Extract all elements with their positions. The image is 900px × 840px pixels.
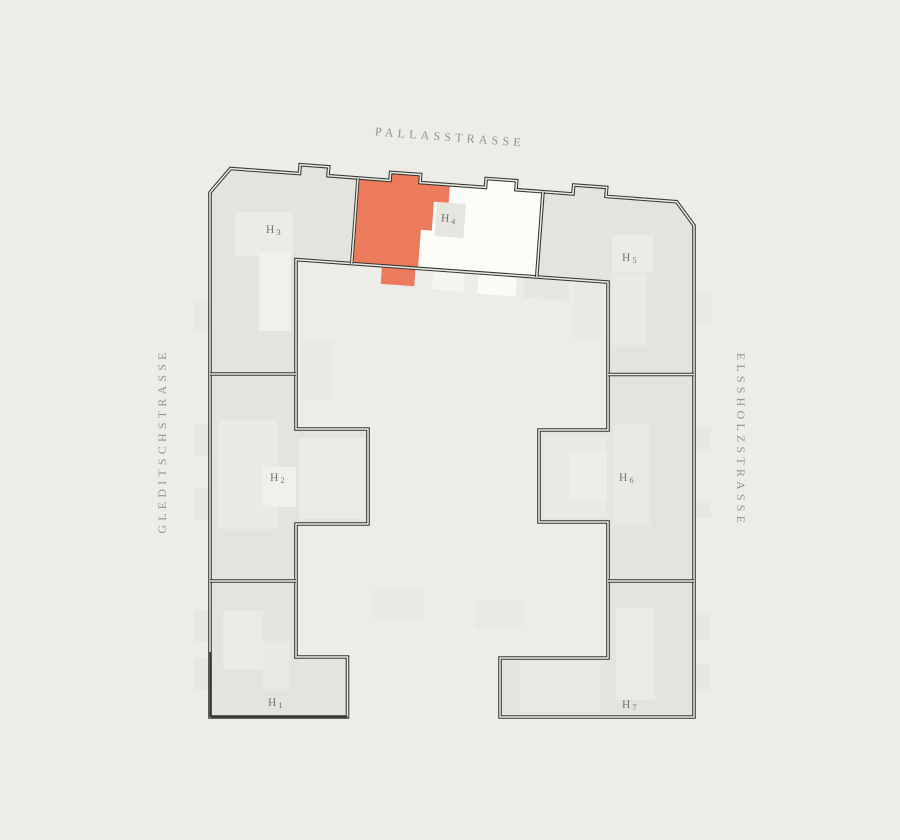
- svg-text:GLEDITSCHSTRASSE: GLEDITSCHSTRASSE: [155, 348, 169, 533]
- svg-text:ELSSHOLZSTRASSE: ELSSHOLZSTRASSE: [734, 353, 748, 527]
